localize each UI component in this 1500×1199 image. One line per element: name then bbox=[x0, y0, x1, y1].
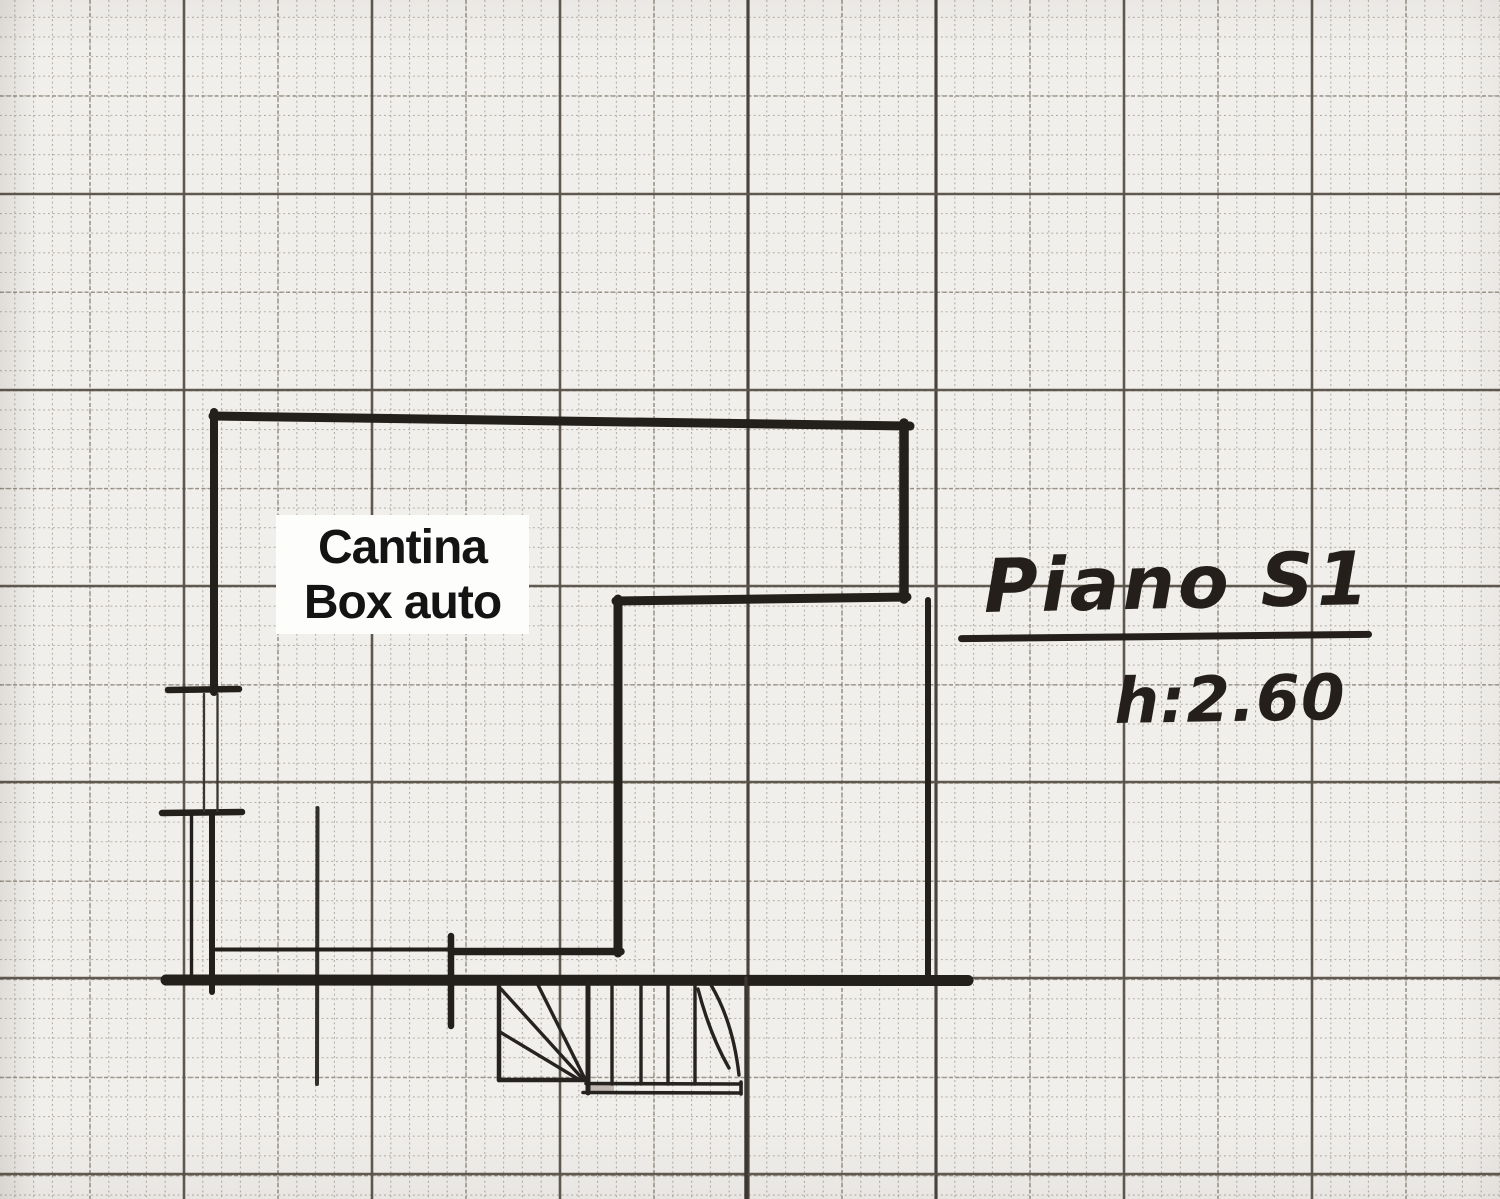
ceiling-height-label: h:2.60 bbox=[1094, 653, 1366, 748]
opening-jamb-tick-bottom bbox=[162, 812, 242, 813]
pencil-stroke-mark bbox=[317, 808, 318, 1084]
stair-bottom-edge-upper bbox=[586, 1084, 741, 1085]
floor-label: Piano S1 bbox=[964, 539, 1391, 628]
opening-jamb-tick-top bbox=[168, 689, 239, 690]
room-label-line2: Box auto bbox=[304, 575, 501, 630]
stair-bottom-edge-lower bbox=[583, 1093, 741, 1094]
scanned-floorplan-page: Cantina Box auto Piano S1 h:2.60 bbox=[0, 0, 1500, 1199]
exterior-bottom-wall bbox=[166, 980, 968, 981]
room-label-line1: Cantina bbox=[318, 520, 487, 575]
room-label-box: Cantina Box auto bbox=[276, 515, 529, 634]
step-wall bbox=[616, 597, 907, 601]
